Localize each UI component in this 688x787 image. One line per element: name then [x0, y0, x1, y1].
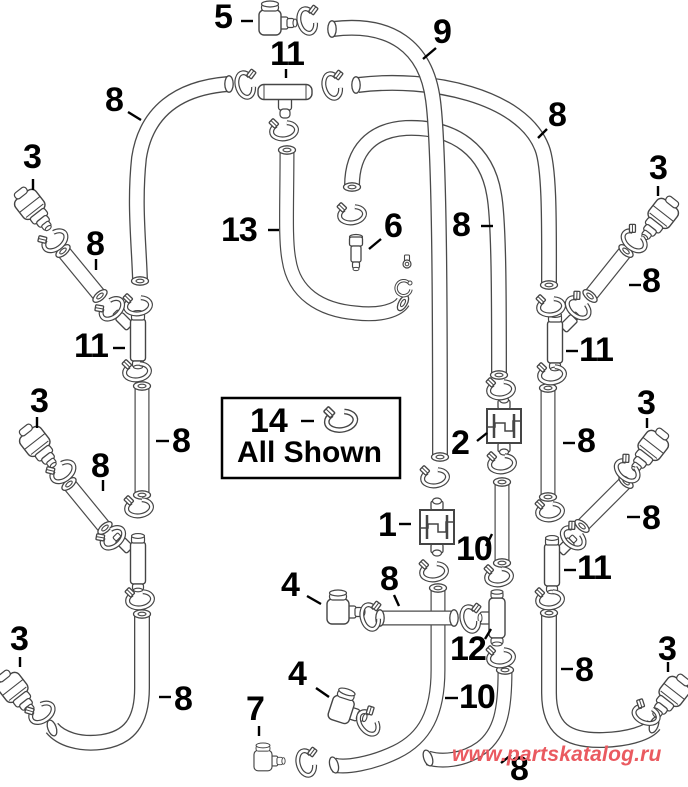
small-hook-clip: [396, 281, 412, 296]
fitting-3-mid-right: [623, 423, 674, 478]
fitting-3-upper-left: [8, 182, 59, 237]
callout-5: 5: [214, 0, 232, 34]
callout-2: 2: [451, 426, 469, 460]
check-valve-11-right-1: [548, 311, 582, 371]
callout-11-right-2: 11: [577, 551, 611, 585]
legend-caption: All Shown: [237, 438, 382, 468]
watermark: www.partskatalog.ru: [452, 744, 662, 765]
callout-4-lower: 4: [288, 657, 306, 691]
callout-8-right-tube: 8: [577, 424, 595, 458]
elbow-fitting-5: [259, 1, 297, 35]
callout-8-center-arc: 8: [452, 208, 470, 242]
callout-3-mid-right: 3: [637, 386, 655, 420]
callout-8-left-short-2: 8: [91, 449, 109, 483]
callout-10-upper: 10: [456, 532, 492, 566]
callout-9: 9: [433, 15, 451, 49]
elbow-fitting-7: [254, 743, 285, 771]
fuel-fitting-6: [350, 235, 363, 271]
callout-12: 12: [450, 632, 486, 666]
callout-8-right-short-2: 8: [642, 501, 660, 535]
callout-10-lower: 10: [459, 680, 495, 714]
parts-diagram-page: 5 11 9 8 8 3 3 8 13 6 8 8 11 11 3 3 8 8 …: [0, 0, 688, 787]
small-screw: [403, 255, 411, 268]
fitting-3-mid-left: [13, 419, 64, 474]
callout-11-left-1: 11: [74, 329, 108, 363]
callout-8-left-short-1: 8: [86, 227, 104, 261]
check-valve-11-right-2: [545, 534, 579, 594]
check-valve-11-left-2: [112, 532, 146, 592]
callout-1: 1: [378, 508, 396, 542]
fitting-3-bottom-left: [0, 665, 43, 720]
legend-number: 14: [250, 404, 288, 438]
callout-3-mid-left: 3: [30, 384, 48, 418]
callout-8-horizontal: 8: [380, 562, 398, 596]
callout-13: 13: [221, 213, 257, 247]
fitting-3-bottom-right: [644, 669, 688, 724]
clamps: [23, 4, 663, 777]
callout-8-top-right: 8: [548, 98, 566, 132]
callout-7: 7: [246, 692, 264, 726]
callout-8-right-short-1: 8: [642, 264, 660, 298]
elbow-fitting-4-upper: [327, 590, 365, 624]
callout-11-right-1: 11: [579, 333, 613, 367]
elbow-fitting-4-lower: [327, 686, 374, 730]
callout-11-top: 11: [270, 37, 304, 71]
leader-lines: [20, 21, 668, 763]
callout-3-bottom-left: 3: [10, 622, 28, 656]
callout-8-bottom-right: 8: [575, 653, 593, 687]
callout-6: 6: [384, 209, 402, 243]
callout-3-bottom-right: 3: [658, 632, 676, 666]
tee-fitting-11-top: [258, 85, 312, 119]
callout-3-upper-left: 3: [23, 140, 41, 174]
callout-3-upper-right: 3: [649, 151, 667, 185]
connector-1: [420, 498, 454, 556]
callout-4-upper: 4: [281, 568, 299, 602]
callout-8-top-left: 8: [105, 83, 123, 117]
callout-8-bottom-left: 8: [174, 682, 192, 716]
connector-2: [487, 397, 521, 455]
callout-8-left-tube: 8: [172, 424, 190, 458]
